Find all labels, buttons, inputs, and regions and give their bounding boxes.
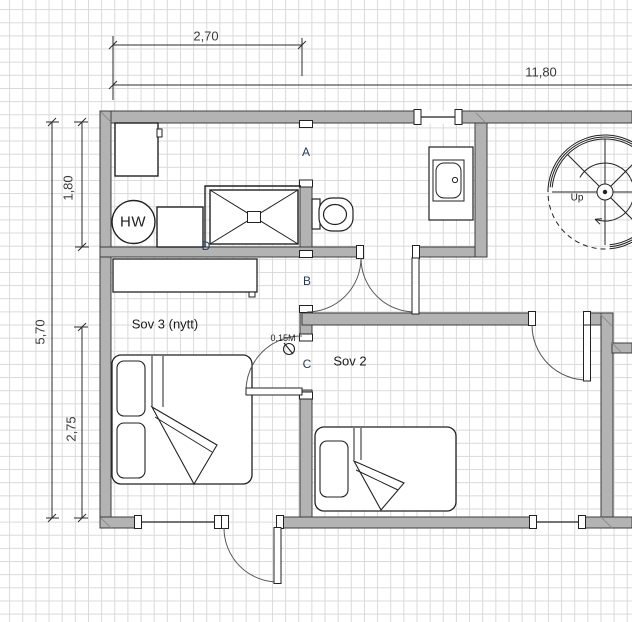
shower-drain [248,212,261,223]
dimension-label-bath-width: 2,70 [193,29,218,44]
wall-right [601,313,613,528]
door-arc-sov2 [532,325,587,380]
door-arc-c [246,336,302,391]
toilet-seat [324,205,347,225]
door-arc-exterior [224,528,278,582]
washing-machine-knob [157,129,162,137]
dimension-label-sov3-height: 2,75 [64,416,79,441]
wall-stub-right-edge [612,343,632,353]
offset-note-label: 0,15M [270,333,295,343]
bed-double-pillow-1 [117,361,145,416]
opening-label-c: C [303,357,312,371]
door-leaves [246,258,591,584]
bed-single-pillow [320,441,348,497]
sov2-furniture [315,427,456,511]
room-label-sov3: Sov 3 (nytt) [132,317,198,332]
closet [113,259,257,292]
stair-up-label: Up [571,193,584,204]
counter [157,207,203,247]
wall-wc-right [475,123,487,257]
door-arc-bathroom [361,258,415,312]
wc-fixtures [312,147,473,231]
closet-handle [249,292,255,297]
room-label-sov2: Sov 2 [333,354,366,369]
door-leaf-sov2 [584,325,591,381]
wall-bottom-4 [584,517,632,528]
wall-mid-lower [300,390,312,518]
sov3-furniture [112,259,257,484]
door-leaf-exterior [274,528,281,584]
stair-center-dot [603,190,607,194]
wall-sov2-top [302,313,532,325]
stair-direction-arrow [595,219,602,225]
door-leaf-bathroom [412,258,419,314]
bed-double-pillow-2 [117,423,145,478]
water-heater-label: HW [120,214,146,231]
dimension-label-bath-height: 1,80 [61,175,76,200]
washing-machine [115,123,158,176]
dimension-label-total-width: 11,80 [525,65,557,80]
offset-symbol [284,343,295,355]
door-arc-b [307,258,361,312]
wall-mid-upper [300,186,312,247]
wall-top [100,111,632,123]
floorplan-drawing [0,0,632,622]
spiral-staircase [548,135,632,249]
floorplan-canvas: 2,70 11,80 1,80 5,70 2,75 Sov 3 (nytt) S… [0,0,632,622]
opening-label-b: B [303,274,311,288]
wall-bath-bottom-left [100,247,360,257]
dimension-label-total-height: 5,70 [33,319,48,344]
opening-label-a: A [302,145,310,159]
sink-drain [452,177,457,182]
door-leaf-c [246,388,302,395]
opening-label-d: D [202,239,211,253]
wall-bottom-3 [278,517,536,528]
wall-left [100,111,111,528]
